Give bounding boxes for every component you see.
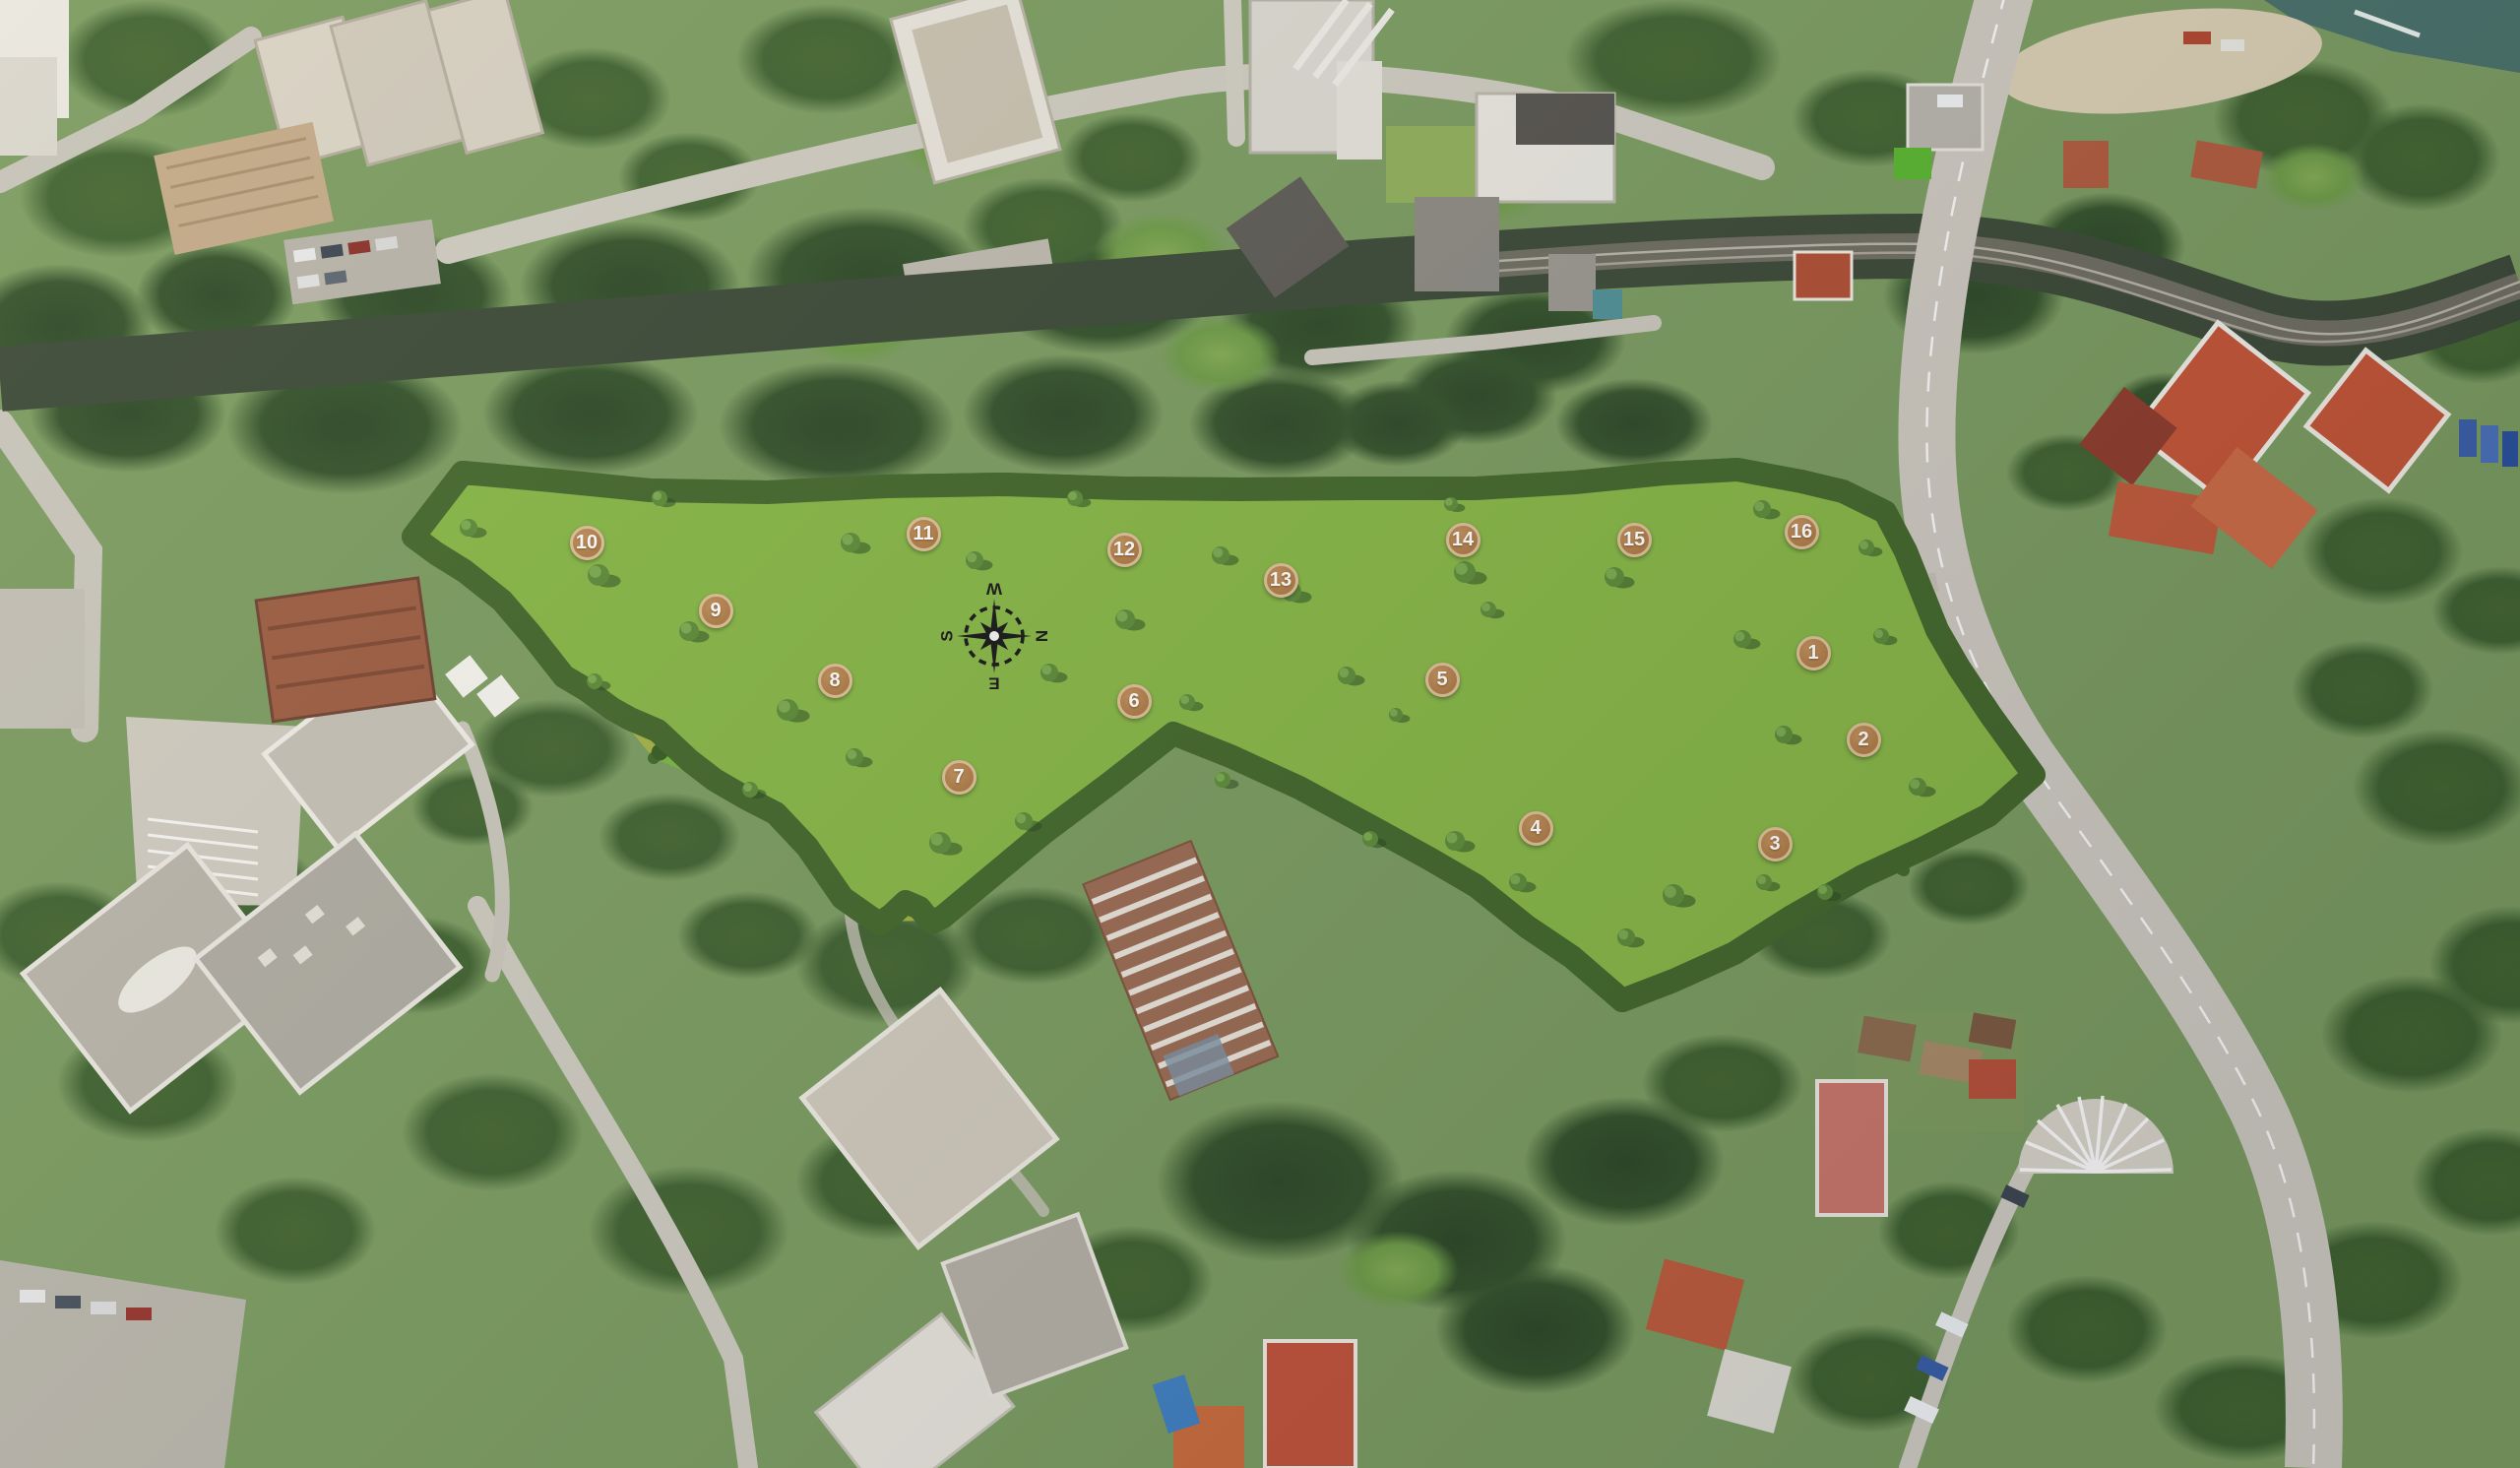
lot-marker-4[interactable]: 4 [1519, 811, 1553, 846]
lot-marker-7[interactable]: 7 [942, 760, 976, 795]
lot-marker-10[interactable]: 10 [570, 526, 604, 560]
lot-number-label: 11 [913, 523, 933, 545]
lot-number-label: 1 [1807, 642, 1818, 665]
compass-letter-w: W [985, 580, 1002, 599]
compass-letter-e: E [988, 674, 999, 693]
parking-fan [2018, 1096, 2173, 1174]
allotment-gardens [1817, 1012, 2024, 1215]
lot-number-label: 8 [829, 670, 840, 692]
compass-letter-s: S [938, 630, 957, 641]
tree-icon [1215, 772, 1238, 789]
lot-number-label: 6 [1128, 690, 1139, 713]
lot-number-label: 5 [1436, 669, 1447, 691]
aerial-photo-background: WNES [0, 0, 2520, 1468]
lot-number-label: 9 [710, 600, 721, 622]
lot-marker-8[interactable]: 8 [818, 664, 852, 698]
lot-number-label: 4 [1530, 817, 1541, 840]
lot-marker-15[interactable]: 15 [1617, 523, 1652, 557]
lot-marker-13[interactable]: 13 [1264, 563, 1298, 598]
lot-marker-12[interactable]: 12 [1107, 533, 1142, 567]
lot-marker-11[interactable]: 11 [907, 517, 941, 551]
lot-marker-6[interactable]: 6 [1117, 684, 1152, 719]
lot-number-label: 10 [576, 532, 598, 554]
lot-marker-14[interactable]: 14 [1446, 523, 1480, 557]
lot-marker-3[interactable]: 3 [1758, 827, 1793, 862]
lot-number-label: 3 [1769, 833, 1780, 856]
lot-marker-1[interactable]: 1 [1796, 636, 1831, 670]
lot-marker-2[interactable]: 2 [1847, 723, 1881, 757]
parked-cars-blue [2459, 419, 2518, 467]
lot-number-label: 2 [1858, 729, 1868, 751]
rust-barn [256, 578, 435, 722]
compass-letter-n: N [1033, 630, 1051, 642]
lot-number-label: 15 [1623, 529, 1645, 551]
aerial-masterplan-view: WNES 12345678910111213141516 [0, 0, 2520, 1468]
lot-number-label: 16 [1791, 521, 1812, 543]
lot-number-label: 14 [1452, 529, 1474, 551]
lot-marker-16[interactable]: 16 [1785, 515, 1819, 549]
lot-marker-9[interactable]: 9 [699, 594, 733, 628]
lot-number-label: 13 [1270, 569, 1291, 592]
lot-number-label: 7 [953, 766, 964, 789]
lot-marker-5[interactable]: 5 [1425, 663, 1460, 697]
striped-barn [1083, 841, 1278, 1100]
lot-number-label: 12 [1113, 539, 1135, 561]
